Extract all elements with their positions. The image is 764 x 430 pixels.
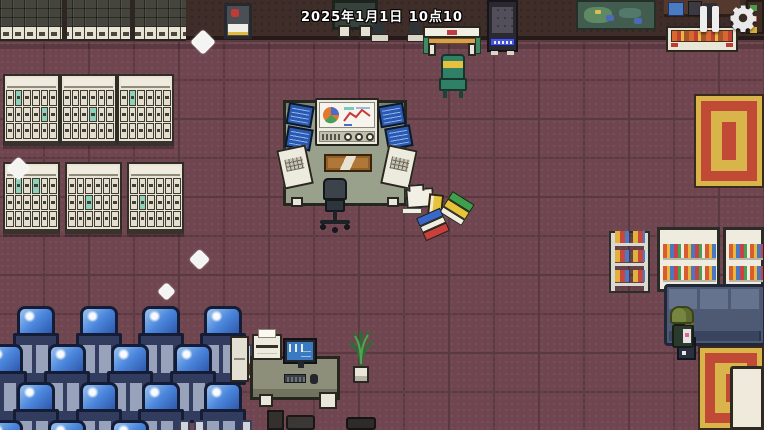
- drawer-grid: [6, 90, 57, 139]
- drawer: [15, 195, 23, 211]
- drawer: [98, 90, 106, 106]
- drawer: [98, 107, 106, 123]
- drawer: [173, 195, 181, 211]
- drawer: [23, 178, 31, 194]
- rack-shelf: [613, 263, 646, 266]
- drawer: [94, 211, 102, 227]
- drawer: [147, 211, 155, 227]
- drawer: [72, 107, 80, 123]
- reception-desk[interactable]: [423, 26, 481, 56]
- drawer: [146, 107, 154, 123]
- drawer: [23, 107, 31, 123]
- drawer: [77, 211, 85, 227]
- drawer: [120, 107, 128, 123]
- drawer: [49, 211, 57, 227]
- drawer: [49, 107, 57, 123]
- scanner-machine[interactable]: [104, 420, 150, 430]
- drawer-grid: [120, 90, 171, 139]
- goods-shelf[interactable]: [657, 227, 720, 292]
- drawer-grid: [130, 178, 181, 227]
- dashboard-chart-graphic: [320, 103, 376, 129]
- drawer: [173, 178, 181, 194]
- npc-hair: [670, 306, 694, 324]
- drawer: [80, 90, 88, 106]
- keyboard: [284, 374, 306, 383]
- drawer: [103, 195, 111, 211]
- npc-body: [672, 324, 694, 348]
- desk-leg: [428, 43, 436, 56]
- drawer-grid: [63, 90, 114, 139]
- drawer: [15, 90, 23, 106]
- machine-body: [200, 409, 246, 430]
- dial: [344, 133, 352, 141]
- drawer: [130, 178, 138, 194]
- mouse: [310, 374, 318, 384]
- dropped-paper[interactable]: [402, 208, 422, 214]
- station-sign: [324, 154, 372, 172]
- chair-back: [441, 54, 465, 80]
- drawer: [139, 211, 147, 227]
- drawer: [49, 123, 57, 139]
- drawer: [32, 211, 40, 227]
- coat-hook-stand[interactable]: [407, 22, 423, 42]
- drawer-cabinet[interactable]: [117, 74, 174, 146]
- date-time-display: 2025年1月1日 10点10: [0, 6, 764, 25]
- drawer: [6, 123, 14, 139]
- drawer: [15, 107, 23, 123]
- drawer: [120, 90, 128, 106]
- desktop-monitor[interactable]: [283, 338, 317, 364]
- drawer: [106, 107, 114, 123]
- shelf-products: [663, 266, 716, 282]
- white-cabinet[interactable]: [230, 336, 249, 382]
- drawer: [72, 90, 80, 106]
- drawer: [80, 123, 88, 139]
- drawer: [32, 90, 40, 106]
- rack-items: [615, 231, 645, 243]
- drawer: [156, 211, 164, 227]
- drawer: [163, 90, 171, 106]
- drawer: [130, 211, 138, 227]
- drawer: [129, 123, 137, 139]
- drawer: [23, 90, 31, 106]
- drawer: [32, 107, 40, 123]
- floor-box: [346, 417, 376, 430]
- drawer: [63, 107, 71, 123]
- drawer: [139, 178, 147, 194]
- machine-dome: [48, 420, 86, 430]
- drawer: [129, 107, 137, 123]
- drawer: [23, 123, 31, 139]
- drawer: [63, 90, 71, 106]
- drawer: [6, 211, 14, 227]
- machine-dome: [0, 420, 23, 430]
- drawer: [163, 107, 171, 123]
- side-table[interactable]: [730, 366, 764, 430]
- drawer: [89, 107, 97, 123]
- drawer: [94, 178, 102, 194]
- drawer: [137, 123, 145, 139]
- goods-shelf[interactable]: [723, 227, 764, 292]
- drawer: [6, 107, 14, 123]
- drawer: [111, 211, 119, 227]
- drawer: [80, 107, 88, 123]
- station-foot: [387, 197, 399, 207]
- drawer: [155, 90, 163, 106]
- sparkle-icon[interactable]: [157, 282, 175, 300]
- shelf-products: [663, 244, 716, 260]
- drawer: [6, 90, 14, 106]
- drawer: [156, 195, 164, 211]
- chart-screen: [319, 102, 375, 128]
- drawer: [49, 195, 57, 211]
- drawer: [23, 195, 31, 211]
- drawer: [49, 178, 57, 194]
- drawer: [68, 178, 76, 194]
- drawer-cabinet[interactable]: [3, 74, 60, 146]
- drawer: [139, 195, 147, 211]
- drawer-grid: [6, 178, 57, 227]
- drawer: [98, 123, 106, 139]
- office-chair[interactable]: [318, 178, 352, 236]
- drawer: [156, 178, 164, 194]
- wall-shadow: [0, 44, 764, 49]
- drawer: [41, 178, 49, 194]
- drawer: [111, 195, 119, 211]
- drawer: [85, 195, 93, 211]
- station-foot: [291, 197, 303, 207]
- cabinet-top: [131, 166, 180, 176]
- chair-seat: [439, 78, 467, 91]
- drawer: [130, 195, 138, 211]
- chair-back: [323, 178, 347, 200]
- rack-items: [615, 270, 645, 282]
- drawer: [41, 107, 49, 123]
- control-panel: [319, 131, 375, 142]
- drawer: [85, 178, 93, 194]
- scanner-machine[interactable]: [0, 420, 24, 430]
- drawer-cabinet[interactable]: [65, 162, 122, 234]
- drawer: [147, 178, 155, 194]
- drawer: [165, 211, 173, 227]
- plant-pot: [353, 366, 369, 383]
- drawer: [120, 123, 128, 139]
- drawer: [77, 178, 85, 194]
- rack-items: [615, 250, 645, 262]
- drawer-cabinet[interactable]: [60, 74, 117, 146]
- drawer: [137, 107, 145, 123]
- drawer: [15, 123, 23, 139]
- drawer: [63, 123, 71, 139]
- potted-plant[interactable]: [346, 328, 376, 384]
- drawer: [155, 123, 163, 139]
- plant-leaves: [346, 328, 376, 370]
- chair-base: [319, 214, 351, 234]
- scanner-machine[interactable]: [197, 382, 243, 430]
- drawer: [49, 90, 57, 106]
- drawer: [103, 211, 111, 227]
- sparkle-icon[interactable]: [189, 249, 210, 270]
- drawer: [41, 90, 49, 106]
- drawer: [6, 195, 14, 211]
- drawer: [85, 211, 93, 227]
- drawer: [32, 195, 40, 211]
- monitor-screen: [377, 102, 406, 128]
- printer[interactable]: [252, 334, 282, 360]
- npc-character[interactable]: [668, 306, 698, 354]
- drawer: [15, 178, 23, 194]
- drawer: [68, 211, 76, 227]
- drawer: [23, 211, 31, 227]
- drawer: [146, 90, 154, 106]
- drawer: [155, 107, 163, 123]
- drawer: [89, 90, 97, 106]
- pause-button[interactable]: [700, 6, 722, 32]
- under-desk-box: [286, 415, 315, 430]
- drawer: [173, 211, 181, 227]
- storage-rack[interactable]: [609, 231, 650, 293]
- drawer: [129, 90, 137, 106]
- settings-gear-icon[interactable]: [728, 3, 758, 33]
- desk-leg: [468, 43, 476, 56]
- rug: [694, 94, 764, 188]
- drawer: [94, 195, 102, 211]
- main-display[interactable]: [315, 98, 379, 146]
- under-desk-box: [267, 410, 284, 430]
- cabinet-top: [7, 78, 56, 88]
- monitor-screen: [285, 102, 314, 128]
- drawer: [106, 90, 114, 106]
- rack-shelf: [613, 243, 646, 246]
- drawer: [32, 178, 40, 194]
- dial: [355, 133, 363, 141]
- desk-top: [423, 26, 481, 38]
- drawer: [111, 178, 119, 194]
- drawer: [15, 211, 23, 227]
- cabinet-top: [69, 166, 118, 176]
- cabinet-top: [64, 78, 113, 88]
- drawer: [89, 123, 97, 139]
- drawer: [103, 178, 111, 194]
- machine-dome: [111, 420, 149, 430]
- drawer: [41, 211, 49, 227]
- drawer: [146, 123, 154, 139]
- drawer: [106, 123, 114, 139]
- drawer: [32, 123, 40, 139]
- game-scene: 2025年1月1日 10点10: [0, 0, 764, 430]
- reception-chair[interactable]: [437, 54, 469, 100]
- cabinet-top: [121, 78, 170, 88]
- drawer: [163, 123, 171, 139]
- drawer-cabinet[interactable]: [127, 162, 184, 234]
- coat-hook-stand[interactable]: [371, 22, 387, 42]
- wall-locker-drawers[interactable]: [0, 27, 186, 41]
- drawer: [68, 195, 76, 211]
- drawer: [147, 195, 155, 211]
- drawer-grid: [68, 178, 119, 227]
- shelf-products: [729, 244, 763, 260]
- scanner-machine[interactable]: [41, 420, 87, 430]
- shelf-products: [729, 266, 763, 282]
- drawer: [41, 195, 49, 211]
- vending-label: [490, 38, 515, 46]
- drawer: [165, 178, 173, 194]
- drawer: [165, 195, 173, 211]
- dial: [366, 133, 374, 141]
- drawer: [41, 123, 49, 139]
- rack-shelf: [613, 283, 646, 286]
- drawer: [72, 123, 80, 139]
- drawer: [6, 178, 14, 194]
- drawer: [137, 90, 145, 106]
- drawer: [77, 195, 85, 211]
